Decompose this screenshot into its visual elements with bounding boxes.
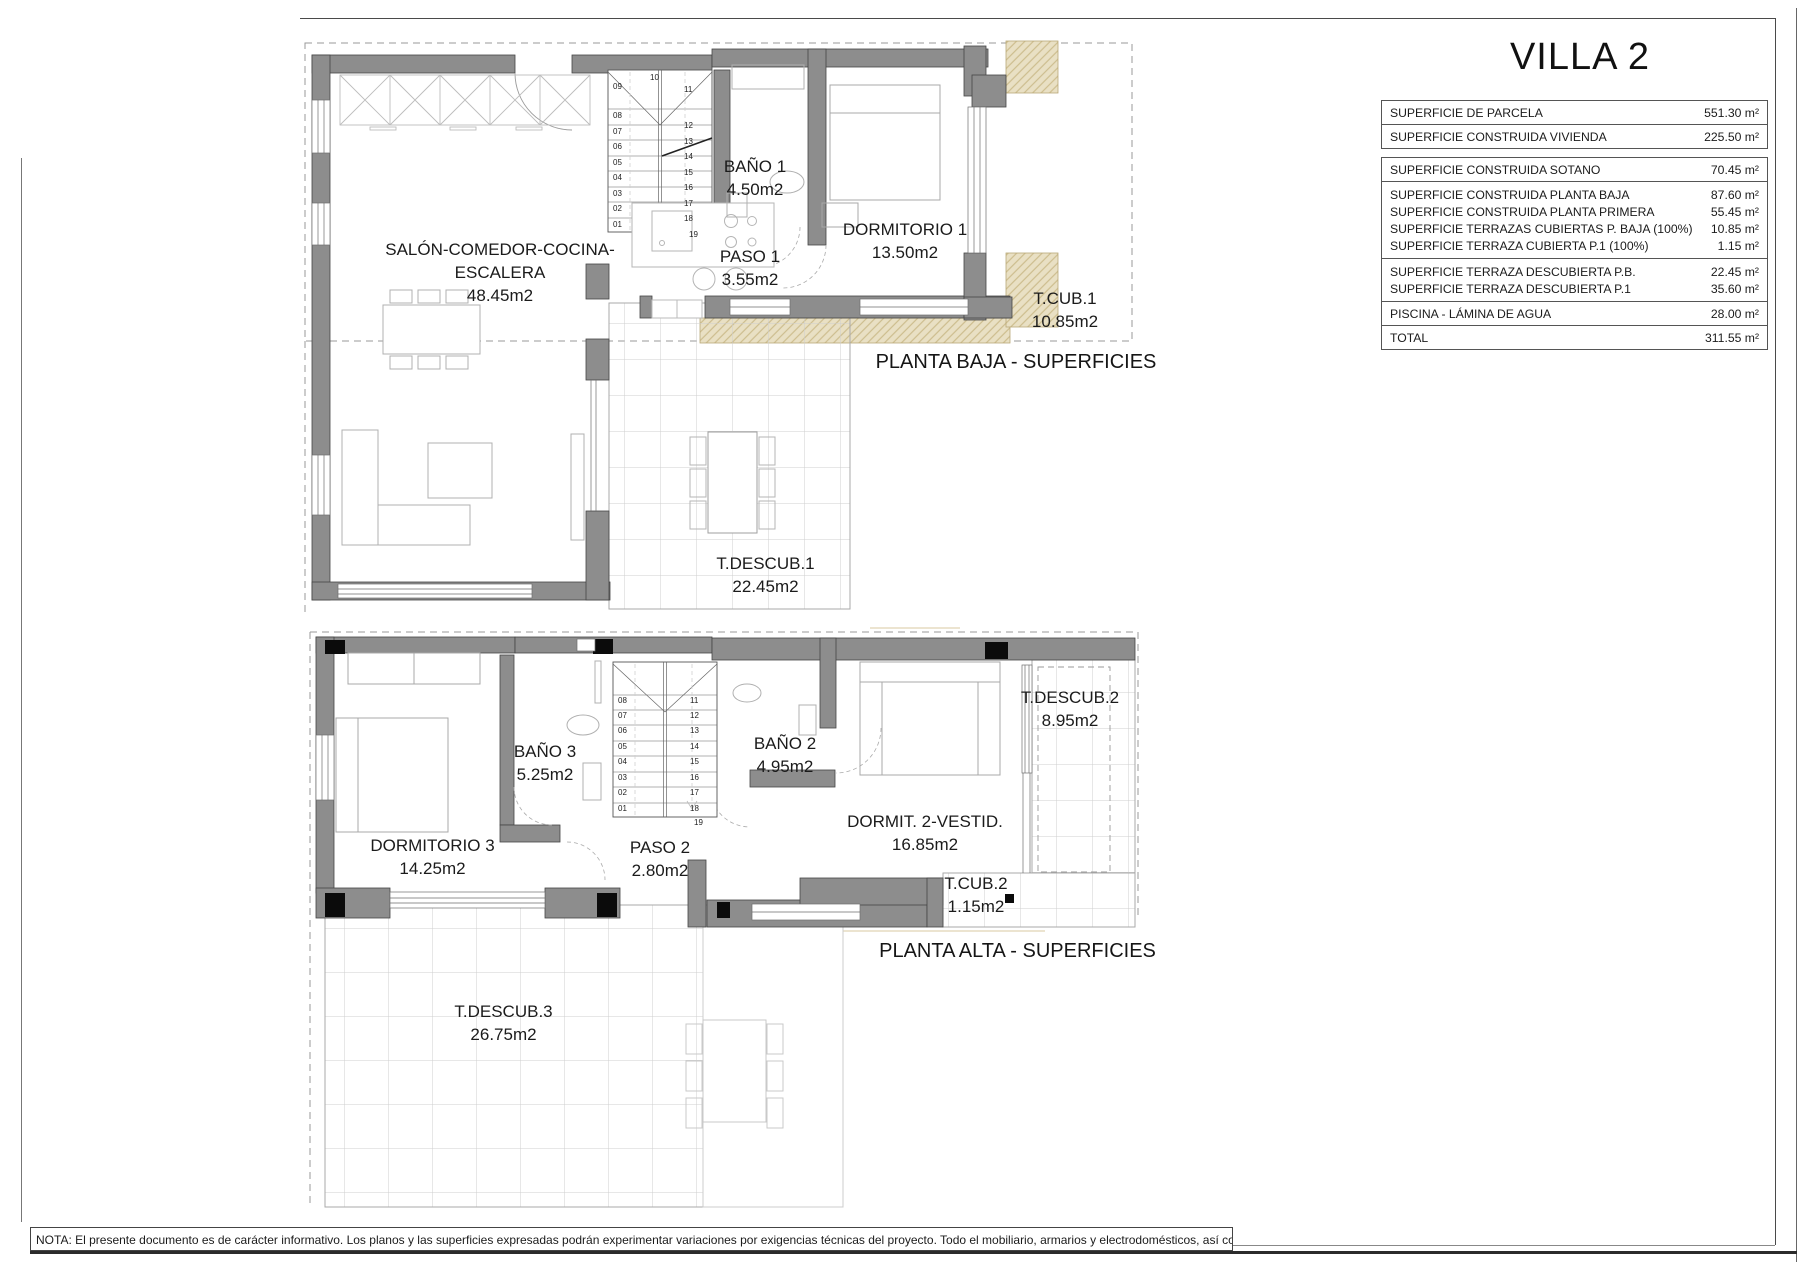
room-label-bano1: BAÑO 1 4.50m2 (700, 155, 810, 201)
room-label-tdescub1: T.DESCUB.1 22.45m2 (693, 552, 838, 598)
stair-step-number: 05 (613, 159, 622, 167)
room-area: 5.25m2 (490, 763, 600, 786)
summary-group: SUPERFICIE TERRAZA DESCUBIERTA P.B.22.45… (1381, 258, 1768, 302)
room-name: BAÑO 1 (700, 155, 810, 178)
room-area: 8.95m2 (1000, 709, 1140, 732)
summary-row-value: 225.50 m² (1696, 130, 1759, 144)
stair-step-number: 05 (618, 743, 627, 751)
room-name: T.CUB.2 (922, 872, 1030, 895)
stair-step-number: 10 (650, 74, 659, 82)
summary-row-label: SUPERFICIE CONSTRUIDA VIVIENDA (1390, 130, 1607, 144)
room-name: T.DESCUB.1 (693, 552, 838, 575)
drawing-sheet: VILLA 2 SUPERFICIE DE PARCELA551.30 m²SU… (0, 0, 1800, 1272)
stair-step-number: 13 (684, 138, 693, 146)
stair-step-number: 04 (618, 758, 627, 766)
summary-row-value: 87.60 m² (1703, 188, 1759, 202)
room-area: 14.25m2 (340, 857, 525, 880)
summary-row-label: SUPERFICIE CONSTRUIDA SOTANO (1390, 163, 1600, 177)
stair-step-number: 08 (613, 112, 622, 120)
room-label-tcub2: T.CUB.2 1.15m2 (922, 872, 1030, 918)
stair-step-number: 04 (613, 174, 622, 182)
summary-row: SUPERFICIE TERRAZA CUBIERTA P.1 (100%)1.… (1382, 237, 1767, 254)
frame-right-outer-line (1796, 8, 1797, 1262)
stair-step-number: 09 (613, 83, 622, 91)
stair-step-number: 02 (618, 789, 627, 797)
summary-group: SUPERFICIE CONSTRUIDA PLANTA BAJA87.60 m… (1381, 181, 1768, 259)
summary-row-label: TOTAL (1390, 331, 1428, 345)
stair-step-number: 19 (689, 231, 698, 239)
room-label-dormitorio1: DORMITORIO 1 13.50m2 (820, 218, 990, 264)
summary-row-value: 311.55 m² (1697, 331, 1759, 345)
summary-group: PISCINA - LÁMINA DE AGUA28.00 m² (1381, 301, 1768, 326)
room-label-tcub1: T.CUB.1 10.85m2 (1000, 287, 1130, 333)
room-name: BAÑO 2 (730, 732, 840, 755)
summary-row-label: SUPERFICIE CONSTRUIDA PLANTA BAJA (1390, 188, 1630, 202)
stair-step-number: 03 (613, 190, 622, 198)
stair-step-number: 01 (618, 805, 627, 813)
summary-row: SUPERFICIE DE PARCELA551.30 m² (1382, 101, 1767, 124)
summary-row: SUPERFICIE CONSTRUIDA SOTANO70.45 m² (1382, 158, 1767, 181)
stair-step-number: 08 (618, 697, 627, 705)
summary-row: SUPERFICIE CONSTRUIDA PLANTA BAJA87.60 m… (1382, 186, 1767, 203)
summary-row-label: SUPERFICIE TERRAZA CUBIERTA P.1 (100%) (1390, 239, 1649, 253)
room-name: DORMITORIO 1 (820, 218, 990, 241)
stair-step-number: 12 (684, 122, 693, 130)
stair-step-number: 11 (684, 86, 692, 94)
stair-step-number: 02 (613, 205, 622, 213)
sheet-title: VILLA 2 (1390, 36, 1770, 79)
summary-row-value: 28.00 m² (1703, 307, 1759, 321)
stair-step-number: 17 (690, 789, 699, 797)
room-name: BAÑO 3 (490, 740, 600, 763)
stair-step-number: 11 (690, 697, 698, 705)
summary-row-value: 551.30 m² (1696, 106, 1759, 120)
ground-floor-caption: PLANTA BAJA - SUPERFICIES (870, 351, 1162, 374)
stair-step-number: 07 (613, 128, 622, 136)
summary-row-label: SUPERFICIE CONSTRUIDA PLANTA PRIMERA (1390, 205, 1655, 219)
room-label-dormit2: DORMIT. 2-VESTID. 16.85m2 (820, 810, 1030, 856)
stair-step-number: 07 (618, 712, 627, 720)
frame-left-line (21, 158, 22, 1222)
room-area: 1.15m2 (922, 895, 1030, 918)
upper-floor-caption: PLANTA ALTA - SUPERFICIES (870, 940, 1165, 963)
summary-row: TOTAL311.55 m² (1382, 326, 1767, 349)
summary-row: SUPERFICIE CONSTRUIDA VIVIENDA225.50 m² (1382, 124, 1767, 148)
stair-step-number: 14 (690, 743, 699, 751)
room-label-salon: SALÓN-COMEDOR-COCINA-ESCALERA 48.45m2 (353, 238, 647, 307)
room-name: SALÓN-COMEDOR-COCINA-ESCALERA (353, 238, 647, 284)
summary-row-label: SUPERFICIE TERRAZAS CUBIERTAS P. BAJA (1… (1390, 222, 1693, 236)
room-name: PASO 1 (695, 245, 805, 268)
room-area: 4.50m2 (700, 178, 810, 201)
summary-row-label: PISCINA - LÁMINA DE AGUA (1390, 307, 1551, 321)
disclaimer-note: NOTA: El presente documento es de caráct… (30, 1227, 1233, 1251)
room-label-tdescub2: T.DESCUB.2 8.95m2 (1000, 686, 1140, 732)
room-area: 48.45m2 (353, 284, 647, 307)
summary-group: SUPERFICIE DE PARCELA551.30 m²SUPERFICIE… (1381, 100, 1768, 149)
stair-step-number: 12 (690, 712, 699, 720)
room-label-bano2: BAÑO 2 4.95m2 (730, 732, 840, 778)
room-label-paso2: PASO 2 2.80m2 (605, 836, 715, 882)
stair-step-number: 16 (690, 774, 699, 782)
stair-step-number: 18 (690, 805, 699, 813)
frame-bottom-thin-line (1233, 1245, 1775, 1246)
room-label-dormitorio3: DORMITORIO 3 14.25m2 (340, 834, 525, 880)
stair-step-number: 15 (684, 169, 693, 177)
summary-row: SUPERFICIE TERRAZA DESCUBIERTA P.135.60 … (1382, 280, 1767, 297)
upper-floor-plan: DORMITORIO 3 14.25m2 BAÑO 3 5.25m2 BAÑO … (300, 620, 1150, 1215)
room-name: T.CUB.1 (1000, 287, 1130, 310)
room-area: 16.85m2 (820, 833, 1030, 856)
stair-step-number: 01 (613, 221, 622, 229)
frame-right-inner-line (1775, 18, 1776, 1245)
summary-group: SUPERFICIE CONSTRUIDA SOTANO70.45 m² (1381, 157, 1768, 182)
sheet-bottom-line (30, 1251, 1797, 1254)
summary-row: SUPERFICIE TERRAZA DESCUBIERTA P.B.22.45… (1382, 263, 1767, 280)
summary-row: PISCINA - LÁMINA DE AGUA28.00 m² (1382, 302, 1767, 325)
stair-step-number: 15 (690, 758, 699, 766)
summary-table: SUPERFICIE DE PARCELA551.30 m²SUPERFICIE… (1381, 101, 1768, 350)
room-name: PASO 2 (605, 836, 715, 859)
summary-row-value: 70.45 m² (1703, 163, 1759, 177)
room-name: T.DESCUB.3 (426, 1000, 581, 1023)
room-area: 13.50m2 (820, 241, 990, 264)
stair-step-number: 14 (684, 153, 693, 161)
room-label-paso1: PASO 1 3.55m2 (695, 245, 805, 291)
stair-step-number: 03 (618, 774, 627, 782)
stair-step-number: 16 (684, 184, 693, 192)
room-name: DORMIT. 2-VESTID. (820, 810, 1030, 833)
room-area: 2.80m2 (605, 859, 715, 882)
summary-row: SUPERFICIE TERRAZAS CUBIERTAS P. BAJA (1… (1382, 220, 1767, 237)
stair-step-number: 19 (694, 819, 703, 827)
summary-row-label: SUPERFICIE DE PARCELA (1390, 106, 1543, 120)
room-area: 22.45m2 (693, 575, 838, 598)
room-area: 10.85m2 (1000, 310, 1130, 333)
stair-step-number: 17 (684, 200, 693, 208)
summary-row-label: SUPERFICIE TERRAZA DESCUBIERTA P.B. (1390, 265, 1636, 279)
summary-row: SUPERFICIE CONSTRUIDA PLANTA PRIMERA55.4… (1382, 203, 1767, 220)
room-name: T.DESCUB.2 (1000, 686, 1140, 709)
room-label-bano3: BAÑO 3 5.25m2 (490, 740, 600, 786)
summary-row-value: 1.15 m² (1710, 239, 1759, 253)
summary-row-value: 35.60 m² (1703, 282, 1759, 296)
stair-step-number: 06 (613, 143, 622, 151)
stair-step-number: 18 (684, 215, 693, 223)
room-area: 3.55m2 (695, 268, 805, 291)
summary-row-value: 22.45 m² (1703, 265, 1759, 279)
room-name: DORMITORIO 3 (340, 834, 525, 857)
room-area: 26.75m2 (426, 1023, 581, 1046)
room-label-tdescub3: T.DESCUB.3 26.75m2 (426, 1000, 581, 1046)
summary-row-value: 10.85 m² (1703, 222, 1759, 236)
stair-step-number: 13 (690, 727, 699, 735)
room-area: 4.95m2 (730, 755, 840, 778)
summary-group: TOTAL311.55 m² (1381, 325, 1768, 350)
ground-floor-plan: SALÓN-COMEDOR-COCINA-ESCALERA 48.45m2 BA… (300, 35, 1140, 625)
stair-step-number: 06 (618, 727, 627, 735)
summary-row-label: SUPERFICIE TERRAZA DESCUBIERTA P.1 (1390, 282, 1631, 296)
frame-top-line (300, 18, 1775, 19)
summary-row-value: 55.45 m² (1703, 205, 1759, 219)
